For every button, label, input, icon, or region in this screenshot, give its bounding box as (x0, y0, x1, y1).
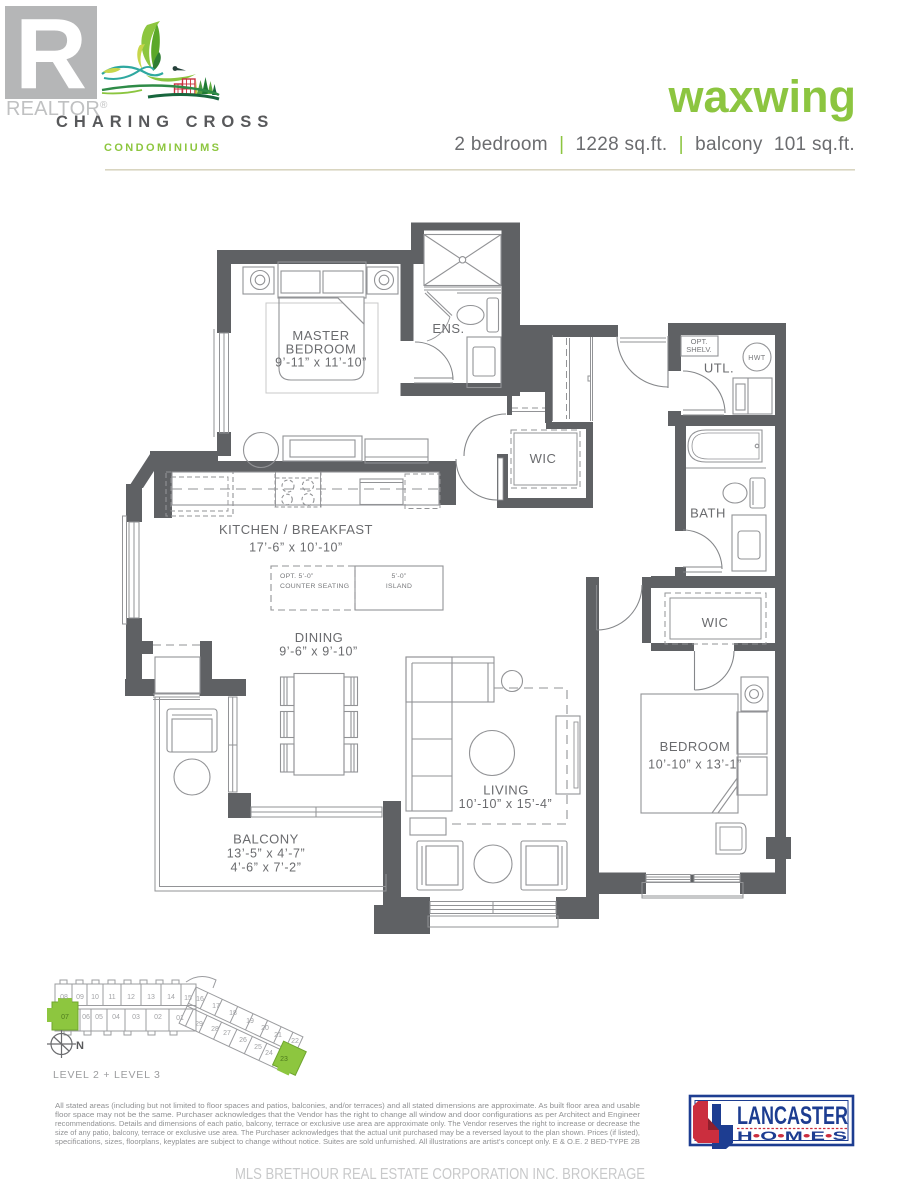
svg-text:28: 28 (211, 1026, 219, 1033)
svg-text:26: 26 (239, 1037, 247, 1044)
svg-text:02: 02 (154, 1014, 162, 1021)
svg-text:ENS.: ENS. (432, 321, 464, 336)
svg-text:COUNTER SEATING: COUNTER SEATING (280, 583, 349, 590)
svg-text:08: 08 (60, 994, 68, 1001)
svg-text:size of any patio, balcony, te: size of any patio, balcony, terrace or e… (55, 1130, 640, 1137)
svg-text:10: 10 (91, 994, 99, 1001)
svg-text:04: 04 (112, 1014, 120, 1021)
svg-text:ISLAND: ISLAND (386, 583, 412, 590)
svg-text:CHARING CROSS: CHARING CROSS (56, 113, 274, 131)
svg-text:07: 07 (61, 1014, 69, 1021)
svg-text:waxwing: waxwing (667, 71, 856, 122)
svg-text:floor space may not be the sam: floor space may not be the same. Purchas… (55, 1112, 641, 1119)
svg-text:21: 21 (274, 1032, 282, 1039)
svg-text:HWT: HWT (748, 355, 766, 362)
svg-text:WIC: WIC (530, 451, 557, 466)
svg-text:LIVING: LIVING (483, 783, 529, 798)
svg-text:9’-11” x 11’-10”: 9’-11” x 11’-10” (275, 356, 367, 370)
svg-text:23: 23 (280, 1056, 288, 1063)
svg-text:BALCONY: BALCONY (233, 832, 299, 847)
svg-text:20: 20 (261, 1025, 269, 1032)
svg-text:14: 14 (167, 994, 175, 1001)
svg-text:25: 25 (254, 1044, 262, 1051)
svg-text:KITCHEN / BREAKFAST: KITCHEN / BREAKFAST (219, 522, 373, 537)
svg-text:WIC: WIC (702, 615, 729, 630)
svg-text:29: 29 (195, 1021, 203, 1028)
svg-text:05: 05 (95, 1014, 103, 1021)
svg-text:recommendations. Details and d: recommendations. Details and dimensions … (55, 1121, 640, 1128)
svg-text:SHELV.: SHELV. (686, 345, 711, 354)
svg-text:9’-6” x 9’-10”: 9’-6” x 9’-10” (279, 645, 358, 659)
svg-text:10’-10” x 13’-1”: 10’-10” x 13’-1” (648, 758, 742, 772)
svg-text:2 bedroom | 1228 sq.ft. |: 2 bedroom | 1228 sq.ft. | balcony 101 sq… (454, 134, 855, 155)
svg-text:10’-10” x 15’-4”: 10’-10” x 15’-4” (459, 797, 553, 811)
svg-text:R: R (15, 0, 87, 110)
svg-text:CONDOMINIUMS: CONDOMINIUMS (104, 142, 221, 154)
svg-text:13’-5” x 4’-7”: 13’-5” x 4’-7” (227, 847, 306, 861)
svg-text:22: 22 (291, 1038, 299, 1045)
svg-text:16: 16 (196, 996, 204, 1003)
svg-text:01: 01 (176, 1015, 184, 1022)
svg-text:BEDROOM: BEDROOM (660, 739, 731, 754)
svg-text:UTL.: UTL. (704, 361, 734, 376)
svg-text:MLS BRETHOUR REAL ESTATE CORPO: MLS BRETHOUR REAL ESTATE CORPORATION INC… (235, 1166, 645, 1183)
svg-text:17: 17 (212, 1003, 220, 1010)
svg-text:06: 06 (82, 1014, 90, 1021)
svg-text:DINING: DINING (295, 630, 344, 645)
svg-text:03: 03 (132, 1014, 140, 1021)
svg-text:All stated areas (including bu: All stated areas (including but not limi… (55, 1103, 640, 1110)
svg-text:OPT. 5’-0”: OPT. 5’-0” (280, 573, 314, 580)
svg-text:24: 24 (265, 1050, 273, 1057)
svg-text:12: 12 (127, 994, 135, 1001)
svg-text:27: 27 (223, 1030, 231, 1037)
svg-text:15: 15 (184, 995, 192, 1002)
svg-text:17’-6” x 10’-10”: 17’-6” x 10’-10” (249, 541, 343, 555)
svg-text:5’-0”: 5’-0” (391, 573, 407, 580)
svg-text:LEVEL 2 + LEVEL 3: LEVEL 2 + LEVEL 3 (53, 1069, 161, 1081)
svg-text:11: 11 (108, 994, 115, 1001)
svg-text:specifications, sizes, floorpl: specifications, sizes, floorplans, keypl… (55, 1139, 640, 1146)
svg-text:N: N (76, 1040, 84, 1052)
svg-text:13: 13 (147, 994, 155, 1001)
svg-text:BATH: BATH (690, 506, 726, 521)
svg-text:BEDROOM: BEDROOM (286, 342, 357, 357)
svg-text:18: 18 (229, 1010, 237, 1017)
svg-text:09: 09 (76, 994, 84, 1001)
svg-text:H•O•M•E•S: H•O•M•E•S (737, 1131, 848, 1143)
svg-text:19: 19 (246, 1018, 254, 1025)
svg-text:4’-6” x 7’-2”: 4’-6” x 7’-2” (230, 861, 301, 875)
svg-text:LANCASTER: LANCASTER (737, 1102, 848, 1130)
